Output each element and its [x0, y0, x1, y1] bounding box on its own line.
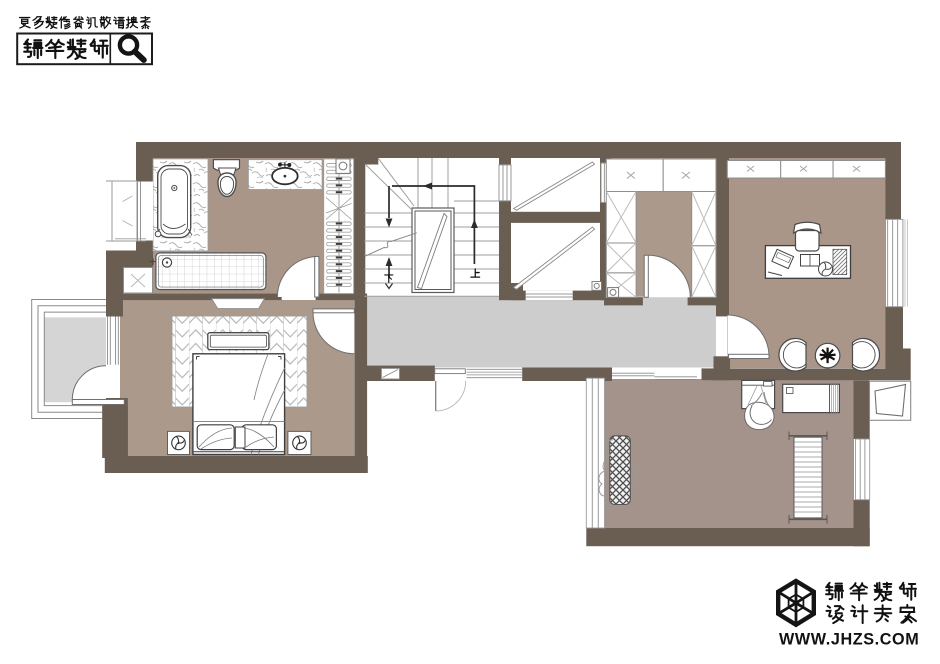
svg-text:WWW.JHZS.COM: WWW.JHZS.COM	[779, 631, 919, 649]
